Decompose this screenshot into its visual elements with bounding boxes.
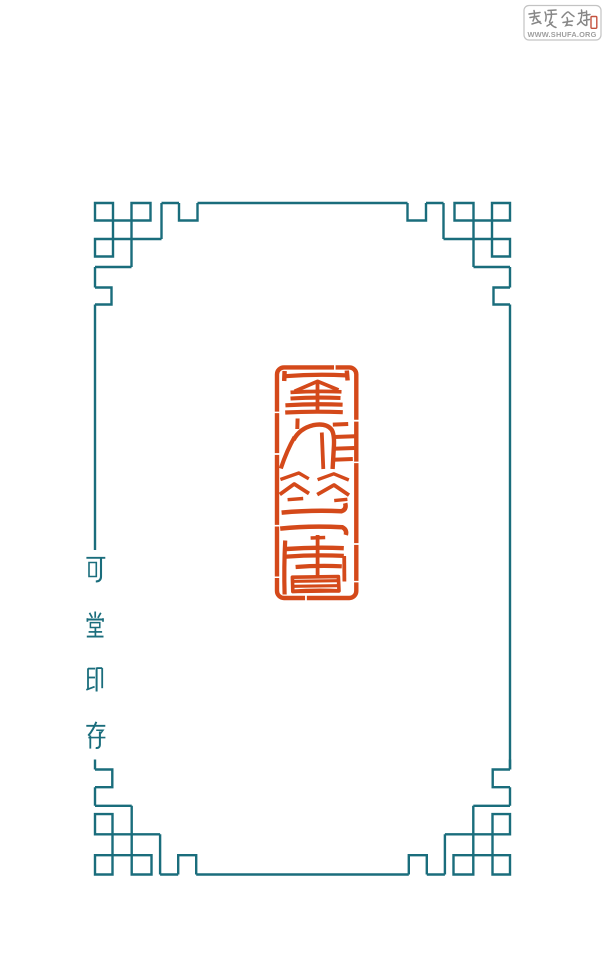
svg-text:WWW.SHUFA.ORG: WWW.SHUFA.ORG <box>527 30 596 39</box>
